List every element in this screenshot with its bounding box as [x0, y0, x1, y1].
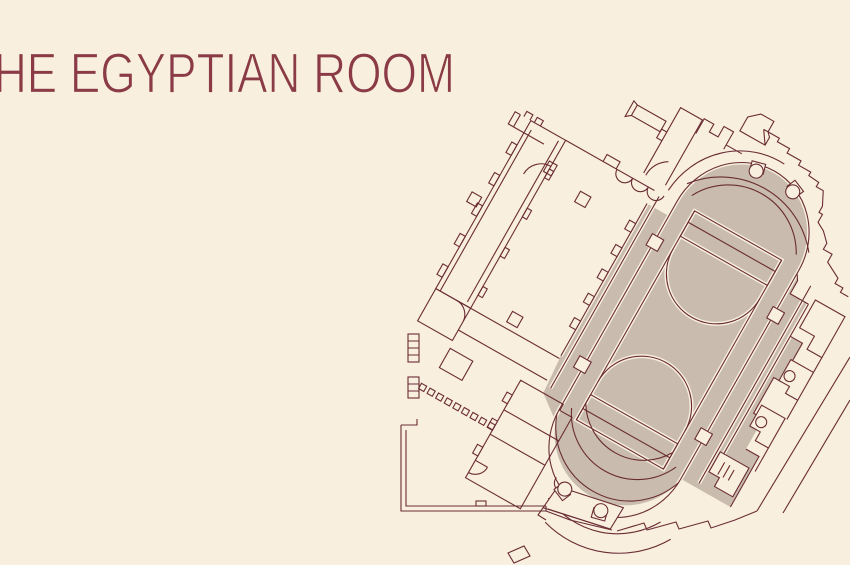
svg-text:THE EGYPTIAN ROOM: THE EGYPTIAN ROOM: [0, 41, 455, 104]
